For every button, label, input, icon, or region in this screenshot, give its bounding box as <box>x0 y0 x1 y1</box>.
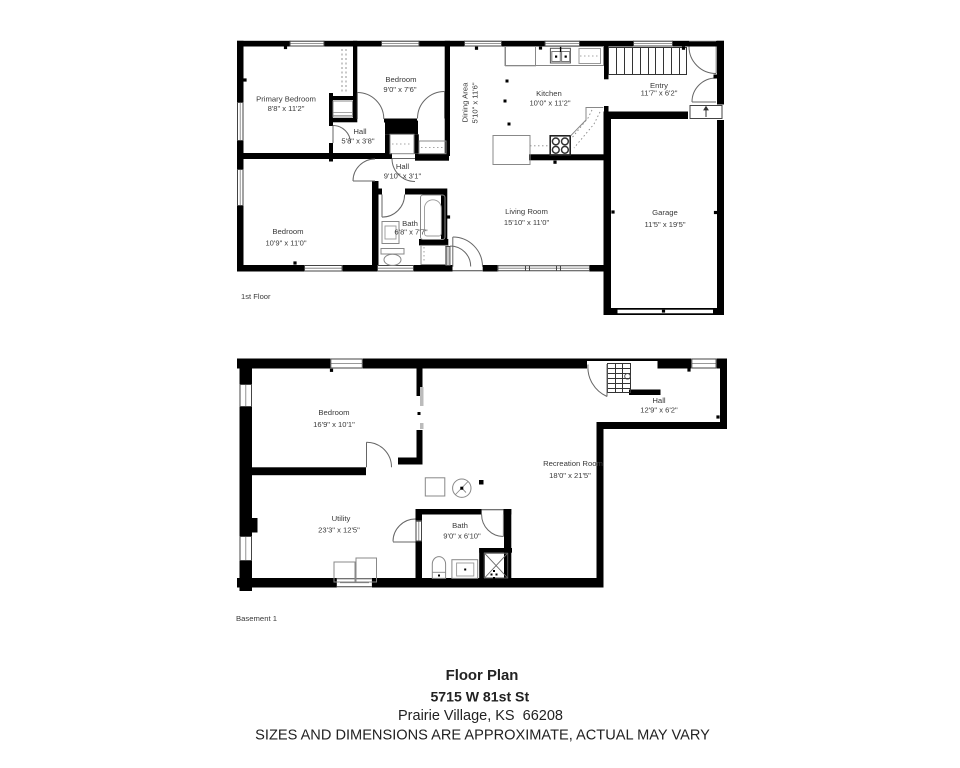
svg-text:10'9" x 11'0": 10'9" x 11'0" <box>265 239 306 248</box>
svg-text:9'0" x 7'6": 9'0" x 7'6" <box>383 85 417 94</box>
svg-text:Floor Plan: Floor Plan <box>446 668 519 684</box>
svg-text:Kitchen: Kitchen <box>536 89 562 98</box>
svg-text:Hall: Hall <box>396 162 410 171</box>
svg-text:Living Room: Living Room <box>505 207 548 216</box>
svg-text:5'8" x 3'8": 5'8" x 3'8" <box>341 137 375 146</box>
svg-text:SIZES AND DIMENSIONS ARE APPRO: SIZES AND DIMENSIONS ARE APPROXIMATE, AC… <box>255 728 710 744</box>
svg-text:16'9" x 10'1": 16'9" x 10'1" <box>313 420 355 429</box>
svg-text:Bedroom: Bedroom <box>385 75 416 84</box>
svg-text:9'0" x 6'10": 9'0" x 6'10" <box>443 532 481 541</box>
svg-text:Bath: Bath <box>452 521 468 530</box>
svg-text:Bedroom: Bedroom <box>318 408 349 417</box>
svg-text:18'0" x 21'5": 18'0" x 21'5" <box>549 471 591 480</box>
svg-text:5715 W 81st St: 5715 W 81st St <box>430 689 529 705</box>
svg-text:8'8" x 11'2": 8'8" x 11'2" <box>268 104 305 113</box>
svg-text:Bedroom: Bedroom <box>272 227 303 236</box>
svg-text:12'9" x 6'2": 12'9" x 6'2" <box>640 406 678 415</box>
svg-text:5'10" x 11'6": 5'10" x 11'6" <box>471 82 480 123</box>
svg-text:Hall: Hall <box>652 396 666 405</box>
svg-text:15'10" x 11'0": 15'10" x 11'0" <box>504 218 550 227</box>
svg-text:Dining Area: Dining Area <box>461 82 470 122</box>
svg-text:23'3" x 12'5": 23'3" x 12'5" <box>318 526 360 535</box>
svg-text:Hall: Hall <box>353 127 367 136</box>
svg-text:6'8" x 7'7": 6'8" x 7'7" <box>394 228 428 237</box>
svg-text:1st Floor: 1st Floor <box>241 292 271 301</box>
svg-text:Recreation Room: Recreation Room <box>543 459 603 468</box>
svg-text:Utility: Utility <box>332 514 351 523</box>
svg-text:Primary Bedroom: Primary Bedroom <box>256 95 316 104</box>
svg-text:Garage: Garage <box>652 208 678 217</box>
svg-text:Basement 1: Basement 1 <box>236 614 277 623</box>
svg-text:10'0" x 11'2": 10'0" x 11'2" <box>529 99 570 108</box>
svg-text:Prairie Village, KS 66208: Prairie Village, KS 66208 <box>398 708 563 724</box>
svg-text:11'7" x 6'2": 11'7" x 6'2" <box>641 89 678 98</box>
svg-text:9'10" x 3'1": 9'10" x 3'1" <box>384 172 422 181</box>
svg-text:11'5" x 19'5": 11'5" x 19'5" <box>644 220 685 229</box>
